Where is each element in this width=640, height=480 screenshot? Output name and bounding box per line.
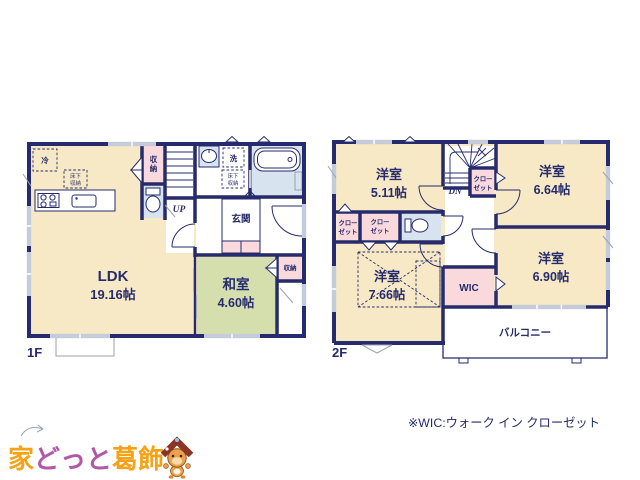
toilet-icon-1f bbox=[146, 188, 160, 212]
window bbox=[606, 262, 610, 290]
fridge-label: 冷 bbox=[41, 155, 49, 165]
storage-hall-label: 収納 bbox=[150, 154, 158, 173]
floor-plan-page: LDK 19.16帖 和室 4.60帖 玄関 収納 収納 冷 洗 床下収納 床下… bbox=[0, 0, 640, 480]
kitchen-counter bbox=[35, 190, 115, 211]
floor-plan-drawing: LDK 19.16帖 和室 4.60帖 玄関 収納 収納 冷 洗 床下収納 床下… bbox=[0, 0, 640, 480]
bath-door-opening bbox=[249, 170, 251, 188]
room-c-label: 洋室 bbox=[374, 269, 400, 284]
wic-label: WIC bbox=[459, 283, 478, 294]
room-a-label: 洋室 bbox=[376, 167, 402, 182]
laundry-label: 洗 bbox=[230, 153, 238, 163]
stairwell-1f bbox=[166, 146, 193, 196]
underfloor-wash-label: 床下収納 bbox=[228, 172, 239, 187]
storage-washitsu-label: 収納 bbox=[284, 263, 298, 272]
window bbox=[468, 140, 488, 144]
floor2-label: 2F bbox=[332, 345, 347, 360]
room-closet-b bbox=[362, 214, 398, 240]
genkan-label: 玄関 bbox=[231, 213, 250, 225]
vanity-icon bbox=[199, 146, 219, 167]
floor1-plan: LDK 19.16帖 和室 4.60帖 玄関 収納 収納 冷 洗 床下収納 床下… bbox=[23, 137, 306, 361]
bathtub-icon bbox=[254, 148, 300, 171]
washitsu-area: 4.60帖 bbox=[218, 295, 255, 310]
underfloor-kitchen-label: 床下収納 bbox=[70, 172, 81, 187]
kitchen-sink-icon bbox=[72, 195, 96, 207]
window bbox=[332, 164, 336, 194]
ldk-area: 19.16帖 bbox=[90, 287, 136, 302]
balcony-label: バルコニー bbox=[499, 327, 551, 339]
room-b-area: 6.64帖 bbox=[534, 182, 571, 197]
room-c-area: 7.66帖 bbox=[369, 287, 406, 302]
floor2-plan: 洋室 5.11帖 洋室 6.64帖 洋室 7.66帖 洋室 6.90帖 WIC … bbox=[328, 137, 613, 364]
room-d-area: 6.90帖 bbox=[533, 269, 570, 284]
room-d-label: 洋室 bbox=[538, 251, 564, 266]
room-closet-a bbox=[338, 214, 358, 240]
wic-footnote: ※WIC:ウォーク イン クローゼット bbox=[408, 416, 600, 430]
window bbox=[512, 305, 586, 309]
window bbox=[606, 166, 610, 200]
stairs-up-label: UP bbox=[173, 205, 186, 215]
room-b-label: 洋室 bbox=[539, 164, 565, 179]
hallway-2f bbox=[445, 146, 494, 265]
toilet-icon-2f bbox=[405, 219, 428, 232]
mascot-drop bbox=[175, 438, 179, 442]
room-closet-hall bbox=[472, 170, 494, 196]
stairs-dn-label: DN bbox=[448, 186, 462, 196]
ldk-label: LDK bbox=[98, 268, 129, 285]
room-a-area: 5.11帖 bbox=[371, 185, 408, 200]
washitsu-label: 和室 bbox=[223, 276, 250, 292]
logo-text: 家どっと葛飾 bbox=[8, 444, 164, 474]
entrance-opening bbox=[302, 204, 306, 238]
window bbox=[302, 284, 306, 306]
floor1-label: 1F bbox=[27, 345, 42, 360]
